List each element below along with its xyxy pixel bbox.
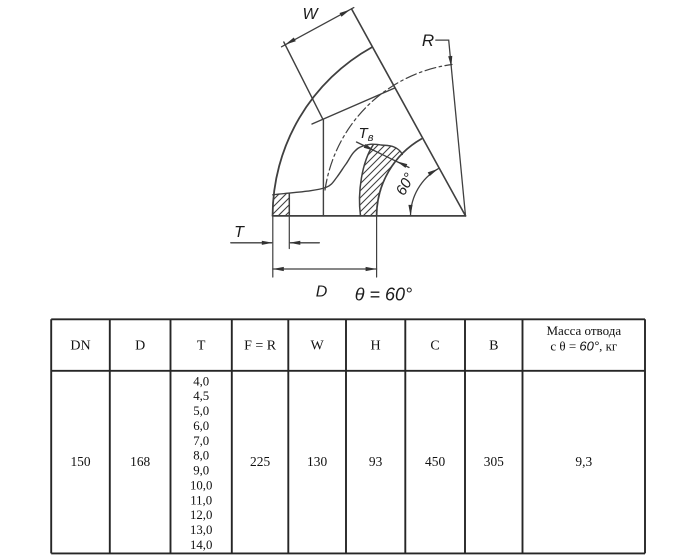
svg-text:168: 168 <box>130 454 150 469</box>
svg-text:DN: DN <box>70 339 90 354</box>
svg-text:F = R: F = R <box>244 339 277 354</box>
svg-text:150: 150 <box>70 454 90 469</box>
svg-text:225: 225 <box>250 454 270 469</box>
svg-text:450: 450 <box>425 454 445 469</box>
svg-text:H: H <box>371 339 381 354</box>
svg-text:D: D <box>316 284 328 301</box>
svg-text:93: 93 <box>369 454 383 469</box>
svg-text:θ = 60°: θ = 60° <box>355 285 413 305</box>
svg-text:6,0: 6,0 <box>193 419 209 433</box>
svg-text:Масса отвода: Масса отвода <box>546 323 621 338</box>
svg-text:T: T <box>234 224 245 241</box>
svg-text:7,0: 7,0 <box>193 434 209 448</box>
svg-text:305: 305 <box>484 454 504 469</box>
svg-text:10,0: 10,0 <box>190 479 212 493</box>
svg-text:130: 130 <box>307 454 327 469</box>
svg-text:R: R <box>422 31 434 50</box>
svg-text:13,0: 13,0 <box>190 523 212 537</box>
svg-text:14,0: 14,0 <box>190 538 212 552</box>
svg-text:4,5: 4,5 <box>193 389 209 403</box>
svg-text:11,0: 11,0 <box>190 493 212 507</box>
svg-text:W: W <box>302 6 319 23</box>
svg-text:4,0: 4,0 <box>193 374 209 388</box>
svg-text:D: D <box>135 339 145 354</box>
svg-text:B: B <box>489 339 498 354</box>
svg-text:T: T <box>197 339 206 354</box>
svg-text:5,0: 5,0 <box>193 404 209 418</box>
svg-text:9,0: 9,0 <box>193 464 209 478</box>
svg-text:8,0: 8,0 <box>193 449 209 463</box>
svg-text:W: W <box>310 339 324 354</box>
svg-text:с θ = 60°, кг: с θ = 60°, кг <box>550 339 617 354</box>
svg-text:12,0: 12,0 <box>190 508 212 522</box>
svg-text:C: C <box>430 339 439 354</box>
svg-text:9,3: 9,3 <box>575 454 592 469</box>
